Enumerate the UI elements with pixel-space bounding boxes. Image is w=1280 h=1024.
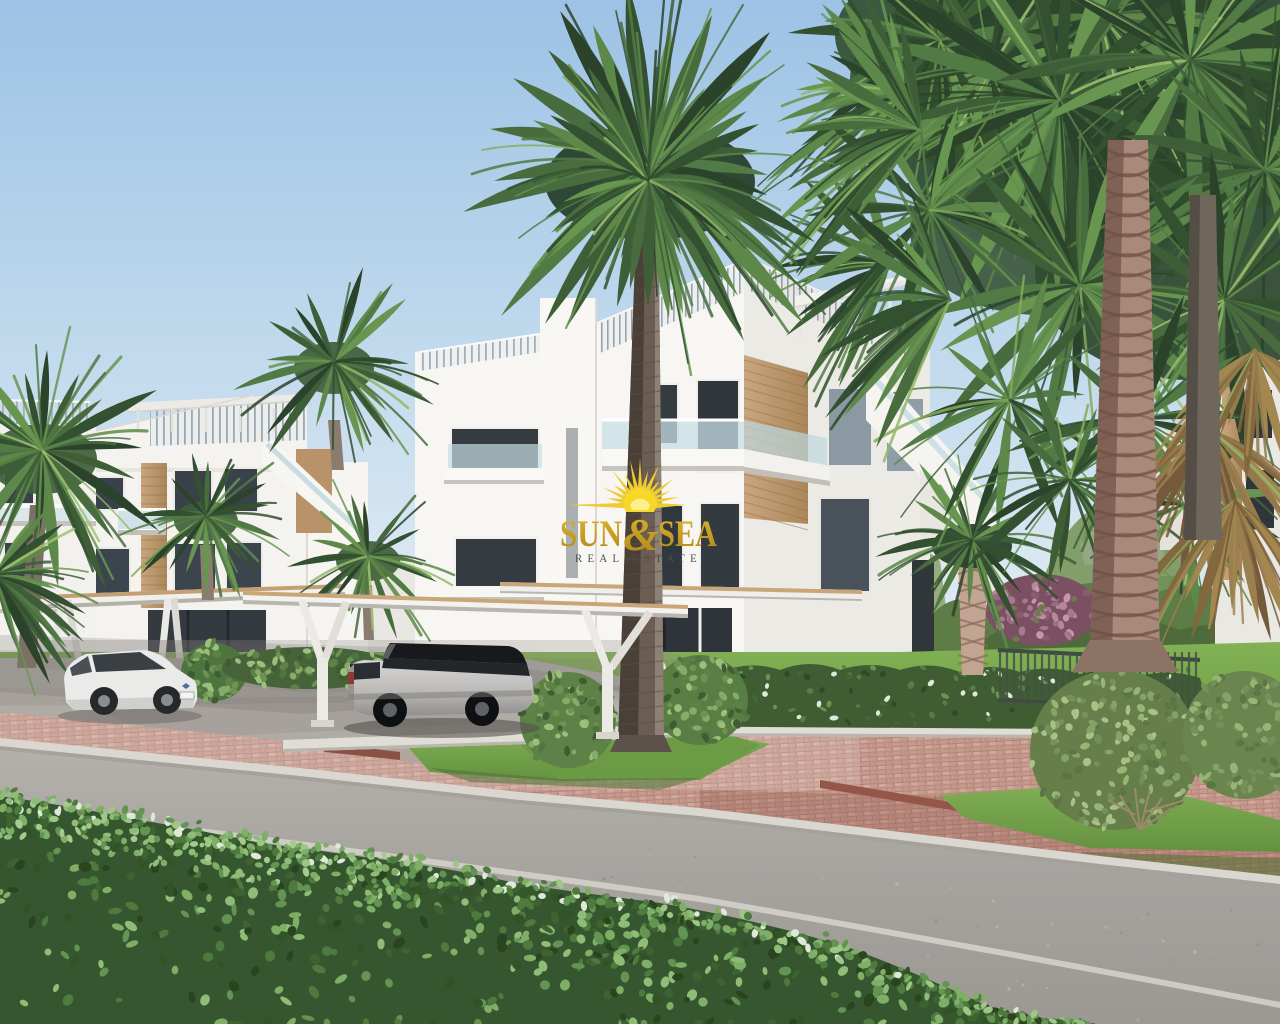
svg-text:SUN: SUN <box>560 514 622 555</box>
svg-text:REAL ESTATE: REAL ESTATE <box>575 551 702 565</box>
svg-text:SEA: SEA <box>658 514 717 555</box>
